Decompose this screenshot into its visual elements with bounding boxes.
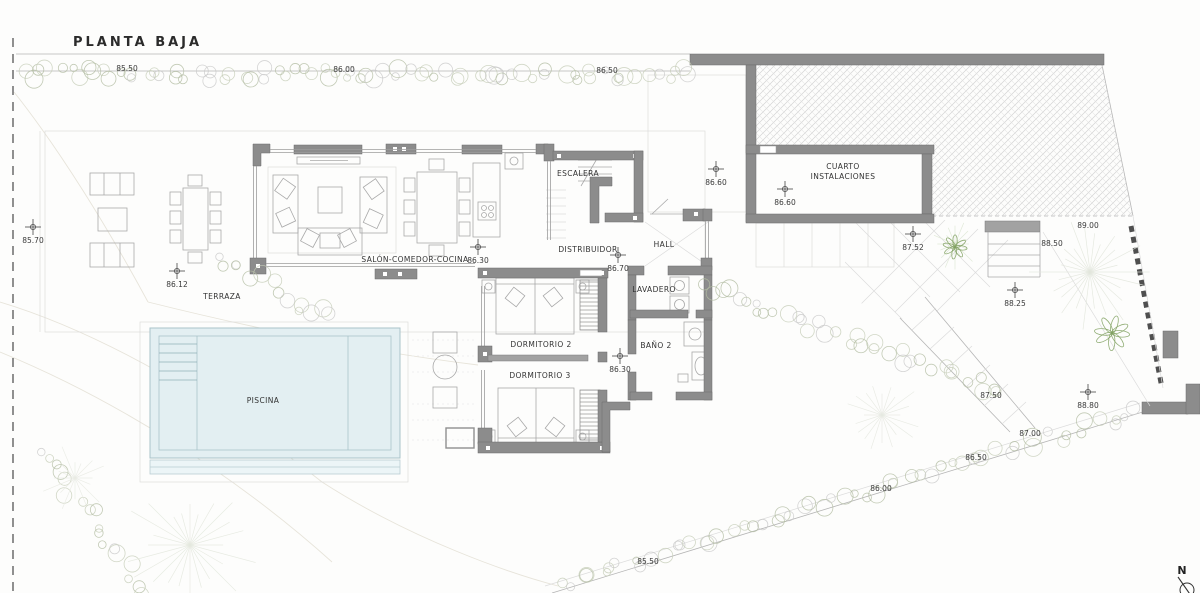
level-label: 89.00 — [1077, 221, 1099, 230]
spot-elevation: 86.12 — [166, 263, 188, 289]
spot-elevation: 85.70 — [22, 219, 44, 245]
side-table — [98, 208, 127, 231]
coffee-table — [318, 187, 342, 213]
dining-table — [417, 172, 457, 243]
garden-step-wall — [985, 221, 1040, 232]
outdoor-dining-table — [183, 188, 208, 250]
page-title: PLANTA BAJA — [73, 35, 202, 50]
level-label: 85.50 — [637, 557, 659, 566]
terrace-furniture — [90, 173, 221, 267]
spot-elevation: 86.60 — [705, 161, 727, 187]
garden-steps — [988, 232, 1040, 277]
level-label: 86.00 — [870, 484, 892, 493]
spot-elevation: 86.30 — [467, 239, 489, 265]
deck-chair — [433, 387, 457, 408]
boundary-wall-corner — [1186, 384, 1200, 414]
level-label: 88.50 — [1041, 239, 1063, 248]
pool-water — [150, 328, 400, 458]
room-label-dormitorio-2: DORMITORIO 2 — [510, 340, 571, 349]
svg-text:86.60: 86.60 — [774, 198, 796, 207]
level-label: 86.50 — [965, 453, 987, 462]
room-label-terraza: TERRAZA — [202, 292, 241, 301]
svg-text:88.25: 88.25 — [1004, 299, 1026, 308]
wall-corner-nw — [253, 144, 270, 166]
floor-plan-page: 85.5086.0086.5089.0088.5087.5087.0086.50… — [0, 0, 1200, 593]
retaining-wall-zigzag — [1131, 226, 1162, 388]
sun-lounger — [90, 173, 134, 195]
svg-text:87.52: 87.52 — [902, 243, 924, 252]
room-label-dormitorio-3: DORMITORIO 3 — [509, 371, 570, 380]
svg-text:86.30: 86.30 — [609, 365, 631, 374]
svg-text:86.30: 86.30 — [467, 256, 489, 265]
dining-kitchen — [404, 153, 523, 256]
boundary-wall-segment — [1163, 331, 1178, 358]
spot-elevation: 88.80 — [1077, 384, 1099, 410]
deck-table — [433, 355, 457, 379]
svg-text:86.70: 86.70 — [607, 264, 629, 273]
room-label-escalera: ESCALERA — [557, 169, 599, 178]
spot-elevation: 88.25 — [1004, 282, 1026, 308]
room-label-distribuidor: DISTRIBUIDOR — [558, 245, 617, 254]
plant — [1094, 315, 1130, 350]
kitchen-sink — [505, 153, 523, 169]
north-arrow: N — [1177, 564, 1194, 593]
deck-chair — [433, 332, 457, 353]
hatched-slope-area — [756, 65, 1133, 216]
sofa — [360, 177, 387, 233]
room-label-salon-comedor-cocina: SALÓN-COMEDOR-COCINA — [361, 255, 469, 264]
living-room-furniture — [268, 157, 396, 255]
dining-chairs — [404, 159, 470, 256]
room-label-hall: HALL — [654, 240, 675, 249]
bedroom-partition — [488, 355, 588, 361]
level-label: 86.00 — [333, 65, 355, 74]
kitchen-island — [473, 163, 500, 237]
north-label: N — [1177, 564, 1186, 577]
wardrobe — [580, 280, 600, 330]
room-label-cuarto-instalaciones: CUARTOINSTALACIONES — [811, 162, 876, 181]
svg-text:86.12: 86.12 — [166, 280, 188, 289]
floor-plan-drawing: 85.5086.0086.5089.0088.5087.5087.0086.50… — [0, 0, 1200, 593]
sofa — [273, 175, 298, 233]
shower — [684, 322, 706, 346]
corridor-wall — [602, 402, 630, 452]
deck-furniture — [412, 332, 476, 448]
spot-elevation: 86.30 — [609, 348, 631, 374]
tree — [128, 503, 256, 593]
spot-elevation: 86.60 — [774, 181, 796, 207]
tree — [848, 386, 919, 449]
cooktop — [478, 202, 496, 220]
vegetation-strip — [38, 448, 149, 593]
level-label: 87.00 — [1019, 429, 1041, 438]
svg-text:85.70: 85.70 — [22, 236, 44, 245]
room-label-piscina: PISCINA — [247, 396, 280, 405]
diagonal-paving — [845, 220, 1008, 322]
wardrobe — [580, 390, 600, 440]
lower-stair-treads — [546, 190, 566, 238]
level-label: 85.50 — [116, 64, 138, 73]
spot-elevation: 87.52 — [902, 226, 924, 252]
upper-retaining-wall — [690, 54, 1104, 65]
entrance-courtyard — [648, 75, 746, 212]
sun-lounger — [90, 243, 134, 267]
toilet — [678, 374, 688, 382]
outdoor-storage — [446, 428, 474, 448]
vegetation-strip — [698, 279, 1000, 400]
svg-text:86.60: 86.60 — [705, 178, 727, 187]
level-label: 86.50 — [596, 66, 618, 75]
room-label-bano-2: BAÑO 2 — [640, 341, 671, 350]
sofa — [298, 228, 362, 255]
svg-text:88.80: 88.80 — [1077, 401, 1099, 410]
level-label: 87.50 — [980, 391, 1002, 400]
room-label-lavadero: LAVADERO — [632, 285, 676, 294]
